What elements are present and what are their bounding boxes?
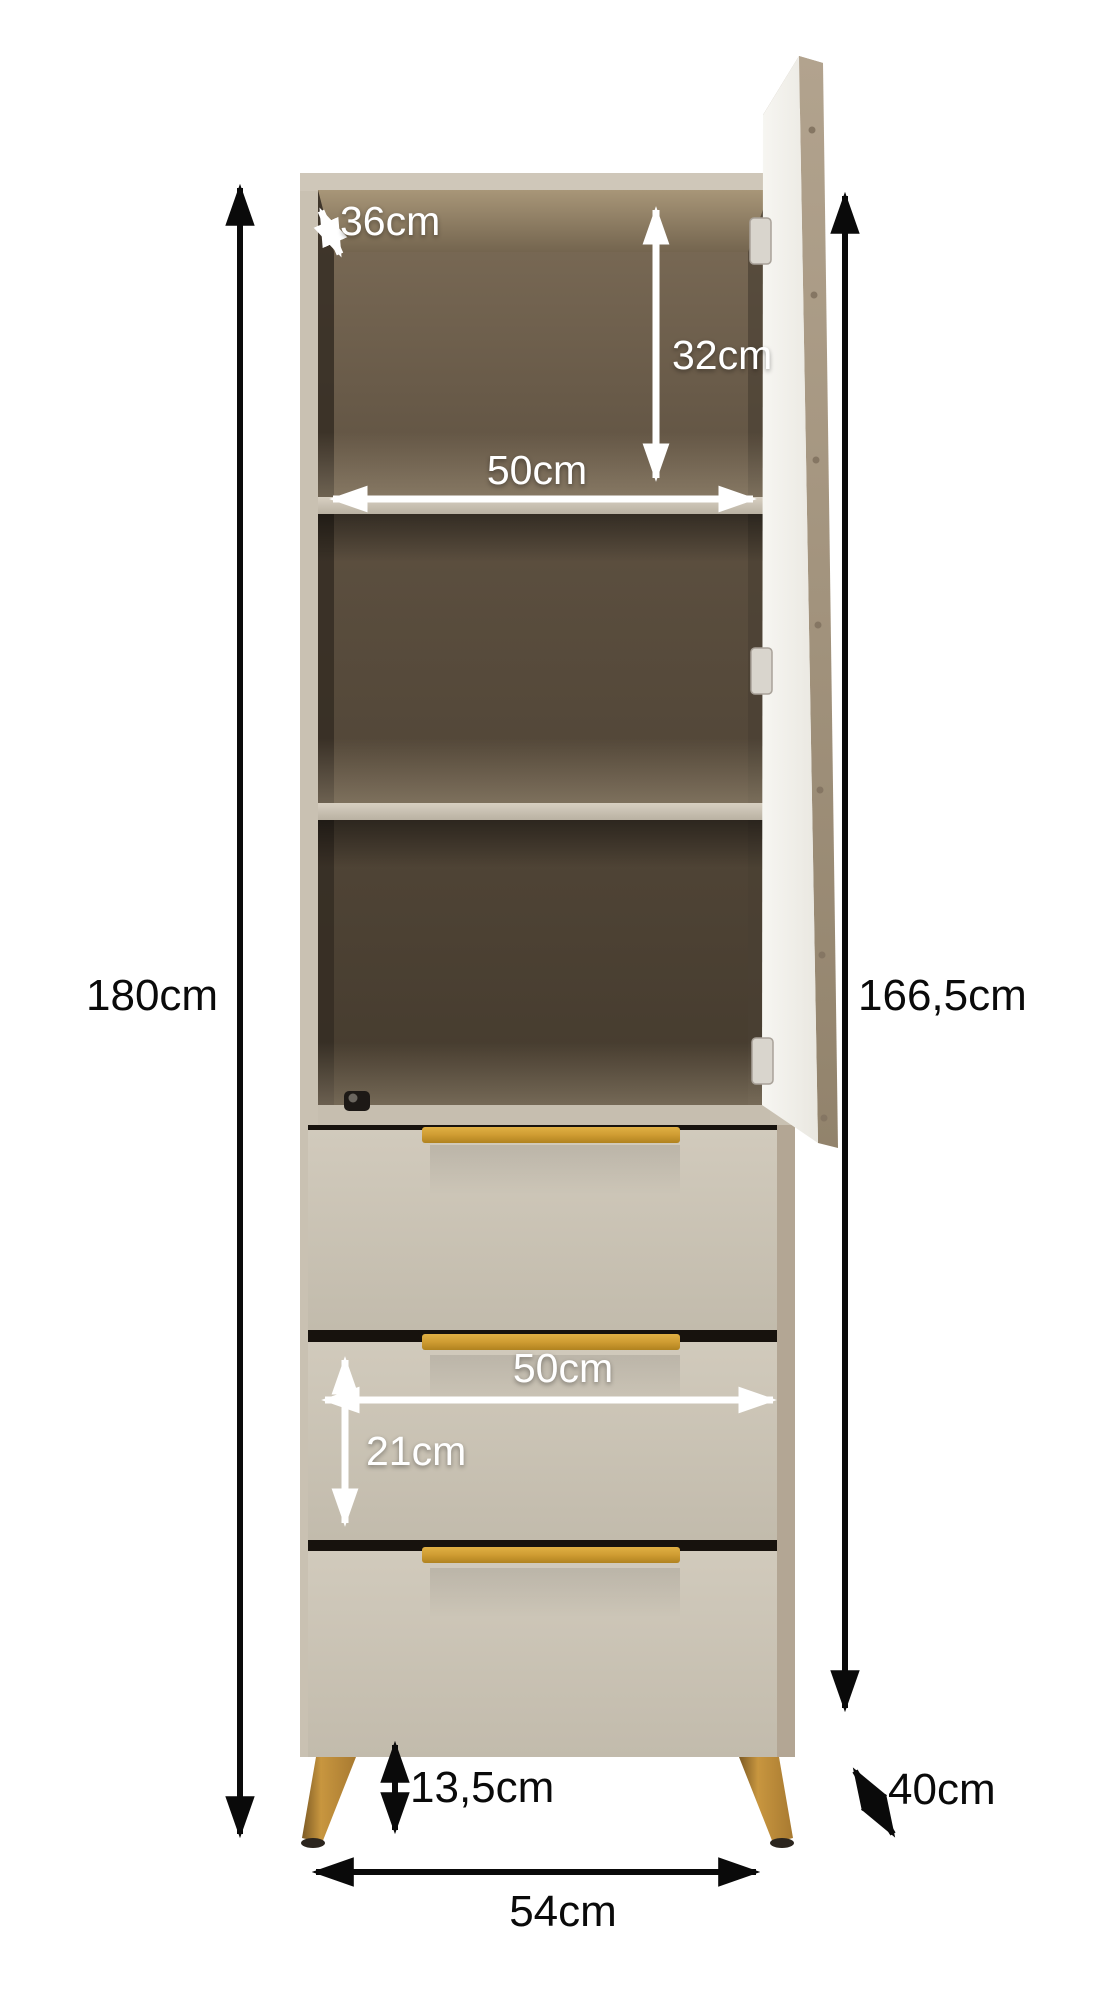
shelf-2-shadow bbox=[318, 820, 770, 868]
compartment-floor bbox=[318, 1105, 770, 1128]
foot-left bbox=[301, 1838, 325, 1848]
body-height-label: 166,5cm bbox=[858, 974, 1027, 1018]
depth-label: 40cm bbox=[888, 1768, 996, 1812]
floor-glow bbox=[318, 1042, 770, 1105]
shelf-2 bbox=[318, 803, 765, 820]
door bbox=[750, 56, 838, 1148]
leg-height-label: 13,5cm bbox=[410, 1766, 554, 1810]
total-height-label: 180cm bbox=[86, 974, 218, 1018]
foot-right bbox=[770, 1838, 794, 1848]
door-hinge-2 bbox=[751, 648, 772, 694]
shelf-2-glow bbox=[318, 738, 770, 803]
cabinet-top-panel bbox=[300, 173, 795, 191]
door-hinge-1 bbox=[750, 218, 771, 264]
base-width-label: 54cm bbox=[509, 1890, 617, 1934]
drawer-height-label: 21cm bbox=[366, 1431, 466, 1472]
interior-back-wall bbox=[318, 190, 770, 1105]
door-bracket-screw bbox=[349, 1094, 358, 1103]
drawer-handle-1 bbox=[422, 1127, 680, 1143]
shelf-width-label: 50cm bbox=[487, 450, 587, 491]
handle-1-shadow bbox=[430, 1145, 680, 1195]
leg-right bbox=[739, 1757, 793, 1843]
leg-left bbox=[302, 1757, 356, 1843]
dimension-diagram: 36cm 32cm 50cm 180cm 166,5cm 50cm 21cm 1… bbox=[0, 0, 1101, 2000]
interior bbox=[318, 190, 770, 1128]
handle-3-shadow bbox=[430, 1568, 680, 1618]
cabinet bbox=[300, 56, 838, 1848]
top-depth-label: 36cm bbox=[340, 201, 440, 242]
drawer-width-label: 50cm bbox=[513, 1348, 613, 1389]
side-panel bbox=[777, 1125, 795, 1757]
interior-left-wall bbox=[318, 190, 334, 1105]
top-compartment-height-label: 32cm bbox=[672, 335, 772, 376]
drawer-handle-3 bbox=[422, 1547, 680, 1563]
door-bracket bbox=[344, 1091, 370, 1111]
shelf-1-shadow bbox=[318, 514, 770, 562]
door-hinge-3 bbox=[752, 1038, 773, 1084]
